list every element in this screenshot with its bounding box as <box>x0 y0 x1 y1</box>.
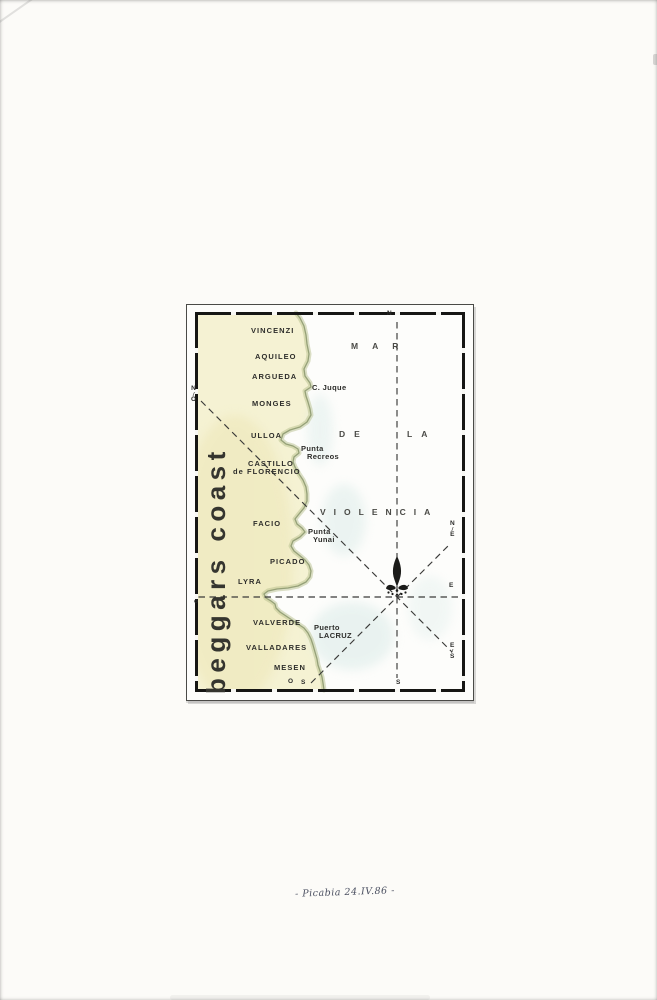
map-neatline-top <box>195 312 465 315</box>
map-neatline-left <box>195 312 198 692</box>
scan-artifact <box>0 0 40 25</box>
scan-artifact <box>170 995 430 1000</box>
map-neatline-right <box>462 312 465 692</box>
scan-mark <box>653 54 657 65</box>
map-title: beggars coast <box>201 312 232 694</box>
artist-signature: - Picabia 24.IV.86 - <box>295 885 395 899</box>
scanned-print-page: beggars coast VINCENZIAQUILEOARGUEDAC. J… <box>0 0 657 1000</box>
map-neatline-bottom <box>195 689 465 692</box>
